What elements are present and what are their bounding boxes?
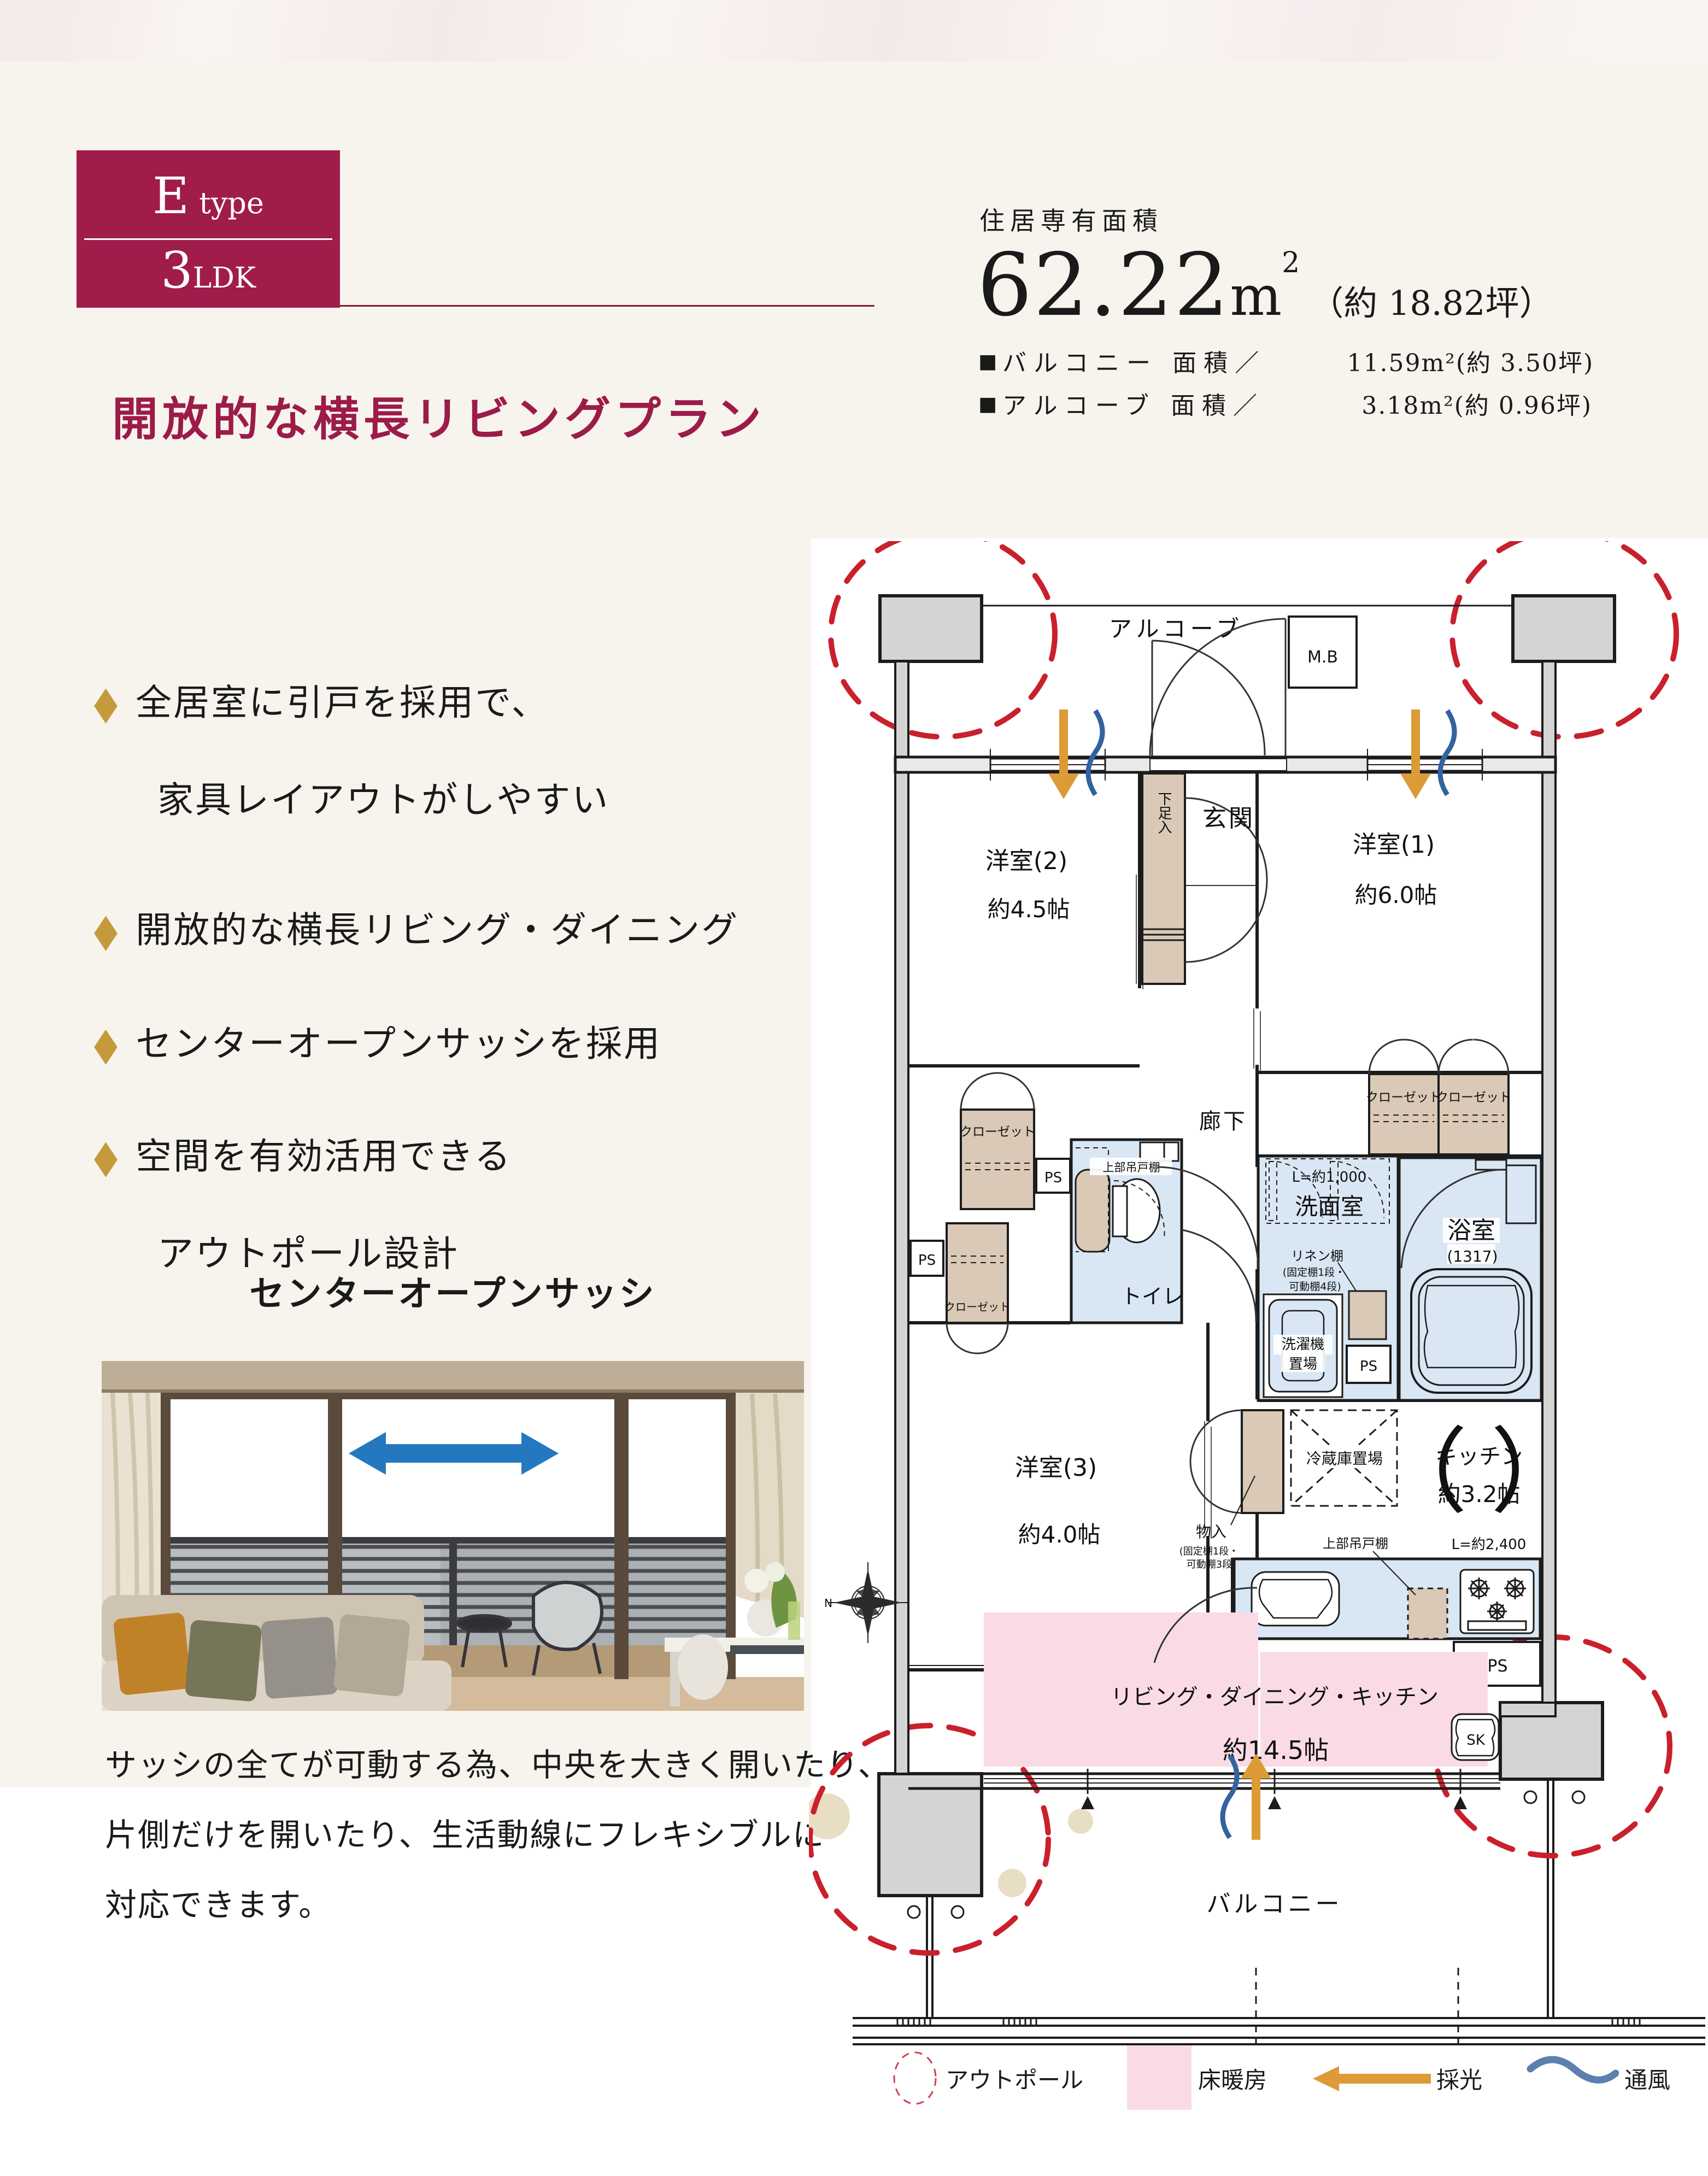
ps-3-label: PS [1360,1358,1377,1375]
badge-divider [84,238,332,240]
plan-legend: アウトポール 床暖房 採光 通風 [890,2045,1693,2111]
badge-rule [340,305,874,307]
kitchen-paren-close: ） [1490,1418,1583,1527]
area-unit-sup: 2 [1282,247,1300,279]
plan-ldk: LDK [193,262,256,295]
feature-item-2: ◆開放的な横長リビング・ダイニング [94,901,739,953]
storage-label: 物入 [1196,1523,1226,1541]
kitchen-size: 約3.2帖 [1438,1481,1521,1508]
alcove-area-name: アルコーブ 面積／ [1002,392,1264,420]
photo-sofa [102,1595,451,1711]
diamond-bullet-icon: ◆ [94,904,119,957]
linen-shelf-note-1: (固定棚1段・ [1283,1266,1346,1278]
legend-wind-label: 通風 [1624,2062,1670,2095]
diamond-bullet-icon: ◆ [94,676,119,730]
plan-type: 3LDK [77,243,340,306]
type-letter: E [152,167,189,225]
legend-heating-label: 床暖房 [1198,2062,1267,2095]
hallway-label: 廊下 [1199,1109,1247,1134]
feature-1-line-1: 全居室に引戸を採用で、 [136,682,549,724]
closet-2 [947,1223,1008,1353]
legend-light-label: 採光 [1436,2062,1482,2095]
balcony-area-row: ■バルコニー 面積／11.59m²(約 3.50坪) [978,343,1594,378]
washroom-length-label: L=約1,000 [1292,1169,1367,1186]
compass-north-label: N [824,1597,832,1610]
page-title: 開放的な横長リビングプラン [112,383,766,449]
sash-caption-line-1: サッシの全てが可動する為、中央を大きく開いたり、 [105,1739,891,1785]
kitchen-length-label: L=約2,400 [1452,1536,1527,1553]
type-name: Etype [77,171,340,228]
kitchen-label: キッチン [1435,1444,1523,1469]
bedroom1-size: 約6.0帖 [1355,882,1437,908]
plan-num: 3 [161,241,193,300]
feature-4-line-1: 空間を有効活用できる [136,1135,512,1177]
sk-label: SK [1466,1732,1486,1749]
square-bullet-icon: ■ [978,350,997,373]
bedroom1-label: 洋室(1) [1353,831,1435,859]
front-wall [895,749,1556,781]
ps-1-label: PS [1044,1170,1062,1186]
area-header-label: 住居専有面積 [979,201,1163,237]
washer-label-1: 洗濯機 [1282,1336,1324,1353]
ps-4-label: PS [1487,1657,1507,1676]
storage-note-1: (固定棚1段・ [1179,1546,1239,1557]
fridge-label: 冷蔵庫置場 [1306,1450,1383,1468]
bathroom-label: 浴室 [1447,1217,1495,1245]
feature-item-3: ◆センターオープンサッシを採用 [94,1014,661,1067]
feature-1-line-2: 家具レイアウトがしやすい [157,771,609,823]
closet-2-label: クローゼット [944,1300,1010,1313]
balcony-area-value: 11.59m²(約 3.50坪) [1266,343,1594,378]
washer-label-2: 置場 [1289,1356,1317,1373]
ldk-size: 約14.5帖 [1223,1735,1329,1765]
area-number: 62.22 [977,235,1230,336]
closet-1 [961,1073,1034,1209]
top-texture-band [0,0,1708,61]
feature-item-4: ◆空間を有効活用できる [94,1127,512,1180]
square-bullet-icon: ■ [978,393,997,415]
linen-shelf-note-2: 可動棚4段) [1289,1281,1341,1293]
bedroom3-label: 洋室(3) [1015,1454,1097,1482]
area-unit: m [1230,264,1282,328]
ventilation-wave-icon [1223,1756,1237,1838]
sash-caption-line-2: 片側だけを開いたり、生活動線にフレキシブルに [105,1809,825,1855]
feature-2-line-1: 開放的な横長リビング・ダイニング [136,909,739,951]
outpole-legend-icon [890,2050,940,2107]
genkan-label: 玄関 [1202,805,1255,832]
bedroom2-label: 洋室(2) [985,847,1067,875]
type-word: type [199,186,264,220]
sash-caption-line-3: 対応できます。 [105,1879,331,1925]
kitchen-upper-cabinet-label: 上部吊戸棚 [1323,1536,1388,1551]
meter-box-label: M.B [1307,648,1338,667]
washroom-label: 洗面室 [1295,1193,1364,1220]
closet-1-label: クローゼット [960,1125,1035,1139]
bottom-window-wall [908,1769,1500,1794]
closet-4-label: クローゼット [1436,1090,1511,1105]
ps-2-label: PS [918,1252,936,1269]
alcove-area-row: ■アルコーブ 面積／3.18m²(約 0.96坪) [978,386,1592,421]
daylight-legend-icon [1311,2062,1431,2095]
feature-item-1: ◆全居室に引戸を採用で、 [94,673,549,726]
bathroom [1399,1158,1541,1400]
bathroom-size: (1317) [1447,1247,1498,1265]
toilet-door-arc [1182,1230,1256,1322]
diamond-bullet-icon: ◆ [94,1017,119,1071]
bedroom3-size: 約4.0帖 [1018,1521,1101,1548]
legend-outpole-label: アウトポール [946,2062,1083,2095]
window-markers [1081,1796,1467,1809]
sash-section-heading: センターオープンサッシ [102,1266,804,1316]
area-value: 62.22m2（約 18.82坪） [977,235,1553,336]
feature-3-line-1: センターオープンサッシを採用 [136,1023,661,1065]
linen-shelf-box [1349,1291,1386,1339]
balcony-label: バルコニー [1206,1890,1342,1918]
wind-legend-icon [1526,2054,1619,2103]
storage-note-2: 可動棚3段) [1187,1559,1236,1570]
diamond-bullet-icon: ◆ [94,1130,119,1183]
bedroom2-size: 約4.5帖 [988,896,1070,923]
sash-photo [102,1361,804,1711]
toilet-label: トイレ [1121,1285,1183,1309]
kitchen-counter [1234,1551,1540,1639]
type-badge: Etype 3LDK [77,150,340,308]
alcove-label: アルコーブ [1109,615,1243,642]
kitchen-paren-open: （ [1375,1418,1468,1527]
closet-3-label: クローゼット [1366,1090,1441,1105]
shoe-cabinet-label: 下足入 [1155,791,1172,834]
linen-shelf-label: リネン棚 [1291,1248,1343,1264]
floor-plan: バルコニー アルコーブ M.B [809,541,1708,2115]
balcony-area-name: バルコニー 面積／ [1002,349,1266,377]
alcove-area-value: 3.18m²(約 0.96坪) [1264,386,1592,421]
floor-heating-legend-icon [1127,2045,1193,2111]
floorplan-page: { "ui": { "diamond": "◆", "square": "■" … [0,0,1708,2176]
toilet-upper-cabinet-label: 上部吊戸棚 [1103,1161,1160,1174]
area-tsubo: （約 18.82坪） [1310,283,1553,323]
ldk-label: リビング・ダイニング・キッチン [1111,1685,1439,1710]
photo-ceiling [102,1361,804,1393]
